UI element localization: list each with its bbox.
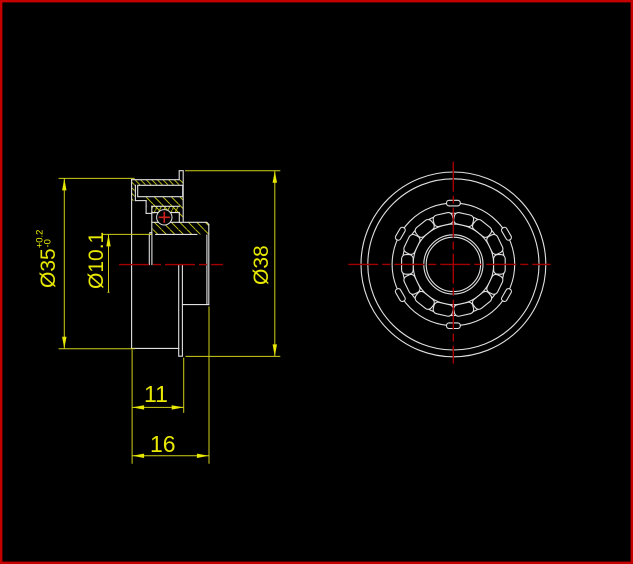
svg-text:16: 16 xyxy=(150,431,176,457)
svg-text:11: 11 xyxy=(144,381,168,407)
svg-text:Ø38: Ø38 xyxy=(250,245,273,285)
svg-text:Ø10.1: Ø10.1 xyxy=(85,232,108,289)
